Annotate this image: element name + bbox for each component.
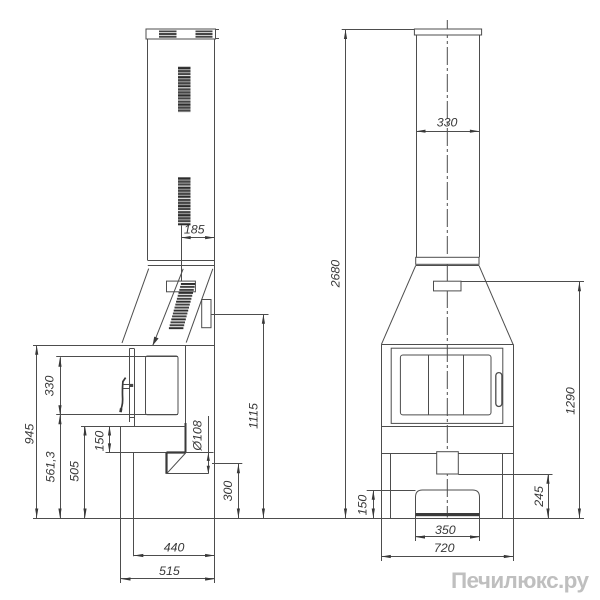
svg-text:2680: 2680 [329, 260, 343, 289]
svg-text:720: 720 [434, 541, 455, 555]
svg-text:150: 150 [93, 431, 107, 452]
svg-text:515: 515 [159, 564, 180, 578]
svg-text:1115: 1115 [246, 403, 260, 429]
svg-text:440: 440 [164, 541, 185, 555]
svg-text:330: 330 [42, 376, 56, 397]
svg-text:1290: 1290 [563, 387, 577, 415]
svg-text:Ø108: Ø108 [190, 420, 204, 451]
svg-text:245: 245 [532, 486, 546, 508]
svg-text:300: 300 [221, 481, 235, 502]
svg-text:330: 330 [437, 116, 458, 130]
svg-text:945: 945 [22, 424, 36, 445]
svg-text:505: 505 [68, 461, 82, 482]
svg-text:Печилюкс.ру: Печилюкс.ру [451, 568, 589, 593]
svg-text:561,3: 561,3 [43, 451, 57, 482]
svg-text:350: 350 [435, 523, 456, 537]
svg-text:150: 150 [356, 495, 370, 516]
svg-text:185: 185 [184, 223, 205, 237]
